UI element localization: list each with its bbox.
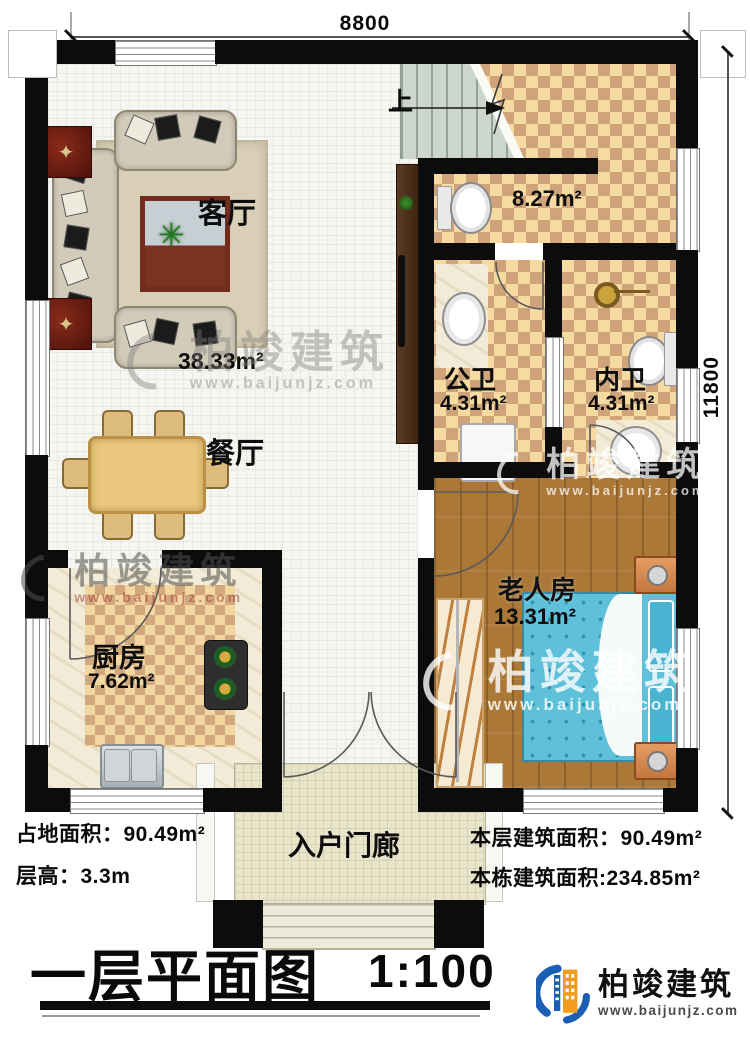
dimension-box — [8, 30, 57, 78]
stair-break-gap — [470, 64, 524, 158]
door-arc — [496, 262, 543, 309]
dimension-right-label: 11800 — [700, 356, 724, 418]
dimension-line-top — [70, 36, 690, 38]
dimension-line-right — [727, 52, 729, 814]
dimension-top-label: 8800 — [320, 12, 410, 36]
room-area-public-bath: 4.31m² — [440, 392, 507, 416]
building-area-text: 本栋建筑面积:234.85m² — [470, 862, 700, 892]
title-underline — [40, 1001, 490, 1010]
door-arc — [284, 692, 369, 777]
brand-name: 柏竣建筑 — [598, 969, 739, 1000]
door-arc — [434, 492, 518, 576]
room-area-living: 38.33m² — [178, 348, 264, 375]
room-label-dining: 餐厅 — [206, 430, 264, 472]
dimension-box — [700, 30, 746, 78]
floor-height-text: 层高：3.3m — [16, 860, 130, 890]
room-area-kitchen: 7.62m² — [88, 670, 155, 694]
room-label-porch: 入户门廊 — [288, 824, 400, 864]
room-area-inner-bath: 4.31m² — [588, 392, 655, 416]
door-arc — [590, 425, 643, 478]
floor-area-text: 本层建筑面积：90.49m² — [470, 822, 702, 852]
brand-url: www.baijunjz.com — [598, 1004, 739, 1018]
brand-logo: 柏竣建筑 www.baijunjz.com — [536, 962, 739, 1024]
land-area-text: 占地面积：90.49m² — [16, 818, 205, 848]
stairs-up-label: 上 — [388, 82, 413, 118]
title-underline-thin — [42, 1015, 480, 1017]
room-area-storage: 8.27m² — [512, 186, 582, 212]
floor-plan-page: ✳ ✦ ✦ — [0, 0, 750, 1041]
room-area-elder: 13.31m² — [494, 604, 576, 630]
scale-label: 1:100 — [368, 944, 496, 998]
door-arc — [371, 692, 456, 777]
room-label-elder: 老人房 — [498, 570, 576, 607]
room-label-living: 客厅 — [198, 190, 256, 232]
brand-logo-icon — [536, 962, 590, 1024]
